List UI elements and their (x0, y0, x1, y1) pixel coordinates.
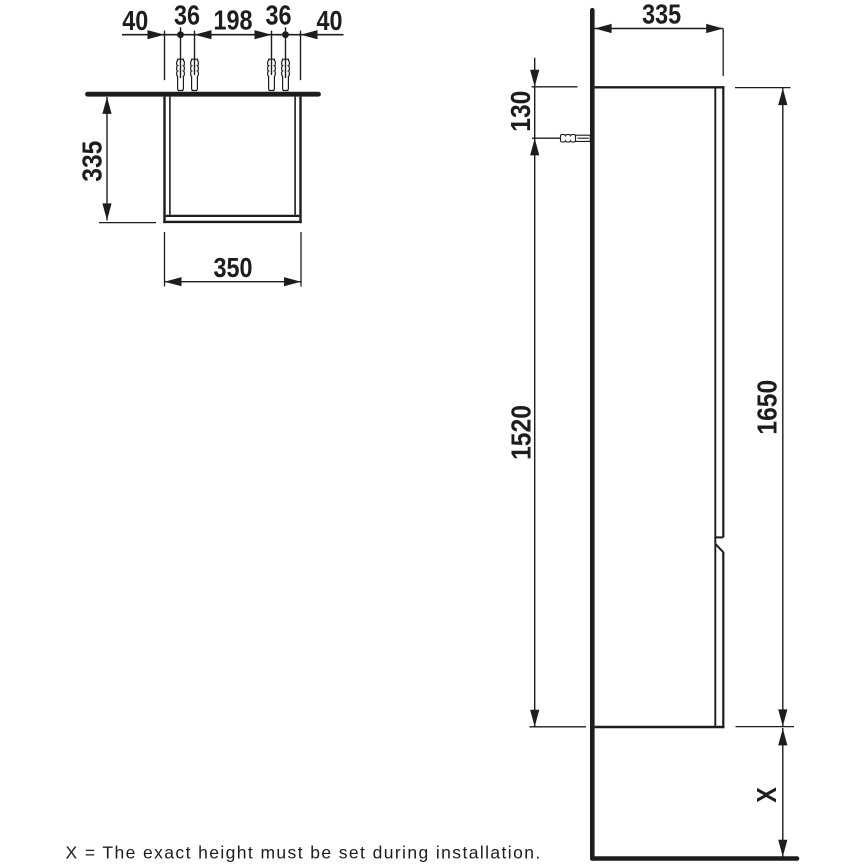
svg-text:40: 40 (316, 6, 342, 36)
svg-text:130: 130 (504, 91, 536, 132)
svg-text:335: 335 (642, 0, 681, 30)
svg-text:36: 36 (174, 1, 200, 31)
svg-text:40: 40 (122, 6, 148, 36)
svg-text:350: 350 (214, 253, 253, 283)
svg-text:X = The exact height must be s: X = The exact height must be set during … (66, 843, 542, 863)
svg-text:1650: 1650 (751, 380, 783, 435)
svg-text:1520: 1520 (505, 405, 537, 460)
svg-text:198: 198 (214, 6, 253, 36)
svg-text:X: X (752, 787, 782, 803)
svg-text:36: 36 (265, 1, 291, 31)
svg-text:335: 335 (76, 141, 108, 182)
